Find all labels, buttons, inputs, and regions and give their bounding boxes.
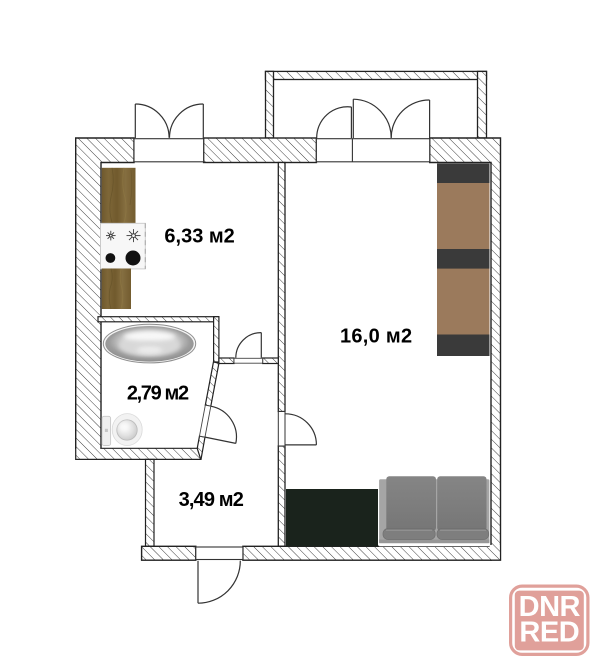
svg-text:6,33 м2: 6,33 м2 bbox=[164, 226, 234, 248]
svg-text:2,79 м2: 2,79 м2 bbox=[127, 382, 189, 404]
svg-text:RED: RED bbox=[519, 617, 579, 649]
svg-text:3,49 м2: 3,49 м2 bbox=[179, 489, 244, 511]
svg-text:16,0 м2: 16,0 м2 bbox=[340, 325, 413, 347]
